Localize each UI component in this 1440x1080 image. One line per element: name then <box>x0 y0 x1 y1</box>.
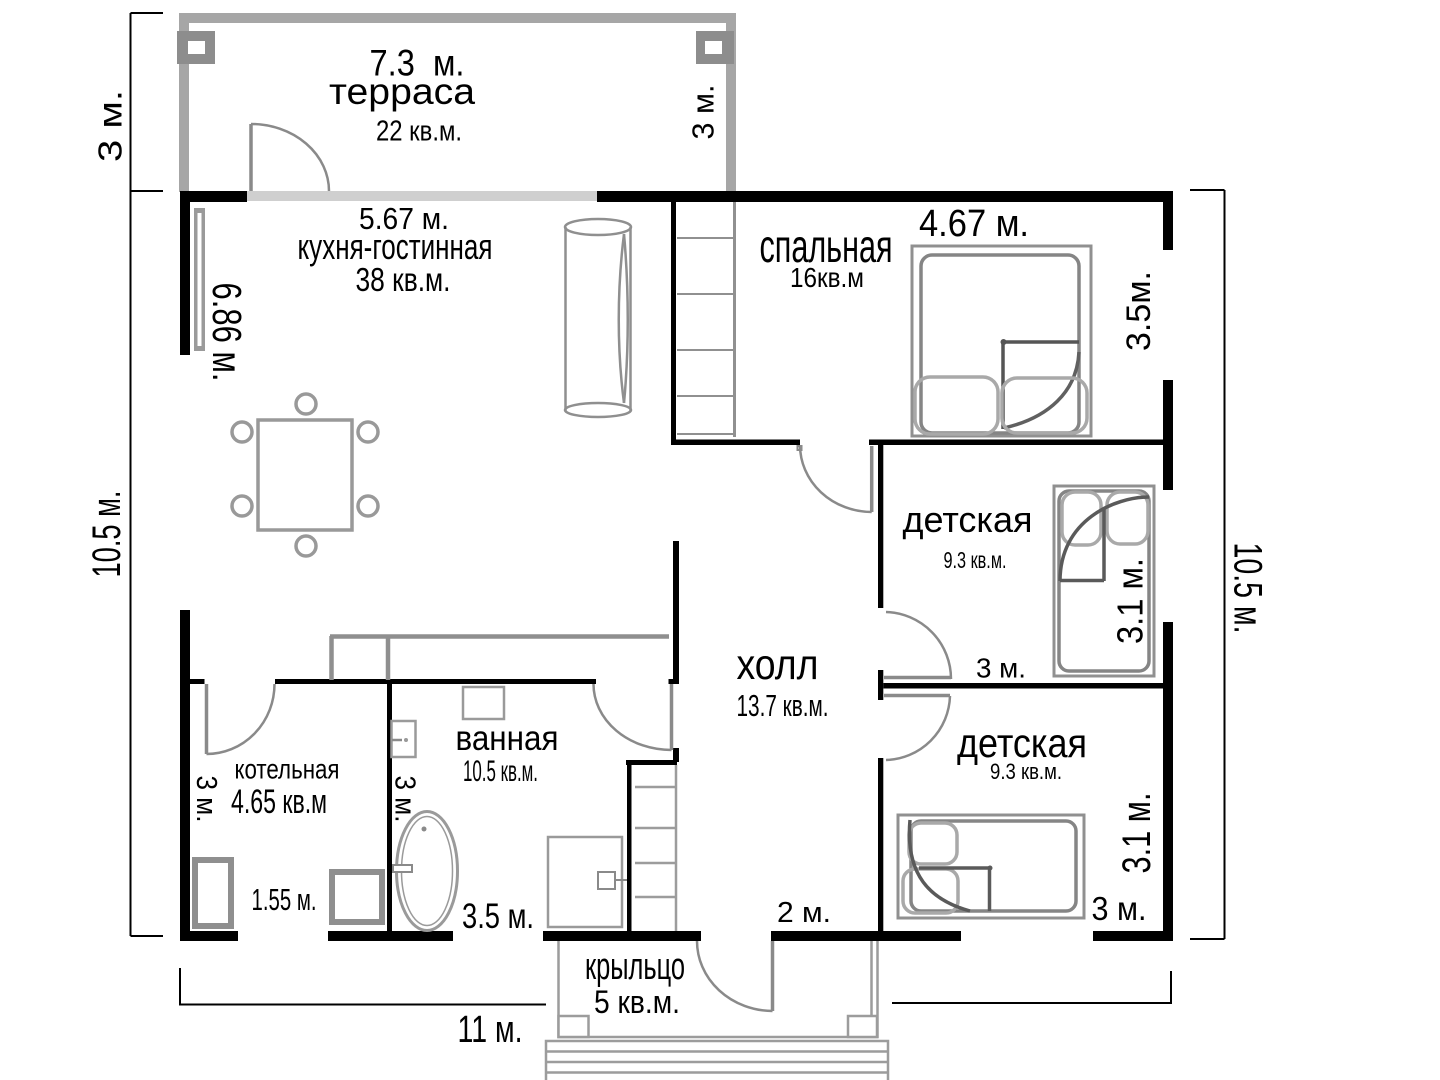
svg-text:4.67 м.: 4.67 м. <box>919 203 1029 245</box>
svg-text:3 м.: 3 м. <box>976 653 1026 684</box>
svg-text:10.5 кв.м.: 10.5 кв.м. <box>463 755 538 788</box>
svg-text:38 кв.м.: 38 кв.м. <box>356 261 451 298</box>
svg-text:3 м.: 3 м. <box>92 90 129 162</box>
svg-text:6.86 м.: 6.86 м. <box>204 283 250 382</box>
svg-text:22 кв.м.: 22 кв.м. <box>376 116 462 148</box>
svg-text:1.55 м.: 1.55 м. <box>252 882 317 917</box>
svg-text:2 м.: 2 м. <box>777 897 831 929</box>
svg-text:3.1 м.: 3.1 м. <box>1110 558 1151 644</box>
svg-text:3.5м.: 3.5м. <box>1120 271 1158 351</box>
svg-text:3.1 м.: 3.1 м. <box>1115 793 1159 874</box>
svg-text:3 м.: 3 м. <box>389 776 421 823</box>
svg-text:9.3 кв.м.: 9.3 кв.м. <box>944 547 1007 573</box>
svg-text:5 кв.м.: 5 кв.м. <box>594 984 680 1020</box>
svg-text:10.5 м.: 10.5 м. <box>85 491 129 578</box>
svg-text:13.7 кв.м.: 13.7 кв.м. <box>737 688 829 723</box>
svg-text:3.5 м.: 3.5 м. <box>462 897 534 936</box>
svg-text:11 м.: 11 м. <box>458 1009 523 1051</box>
svg-text:16кв.м: 16кв.м <box>790 262 864 293</box>
svg-text:3 м.: 3 м. <box>1092 890 1147 927</box>
svg-text:крыльцо: крыльцо <box>585 946 685 988</box>
svg-text:4.65 кв.м: 4.65 кв.м <box>231 783 327 821</box>
svg-text:9.3 кв.м.: 9.3 кв.м. <box>990 759 1062 784</box>
svg-text:ванная: ванная <box>456 719 559 758</box>
svg-text:3 м.: 3 м. <box>686 85 721 140</box>
svg-text:10.5 м.: 10.5 м. <box>1226 543 1270 634</box>
svg-text:котельная: котельная <box>235 754 340 785</box>
svg-text:холл: холл <box>737 641 819 689</box>
svg-text:терраса: терраса <box>329 71 475 112</box>
svg-text:детская: детская <box>903 499 1033 540</box>
svg-text:3 м.: 3 м. <box>190 776 222 823</box>
